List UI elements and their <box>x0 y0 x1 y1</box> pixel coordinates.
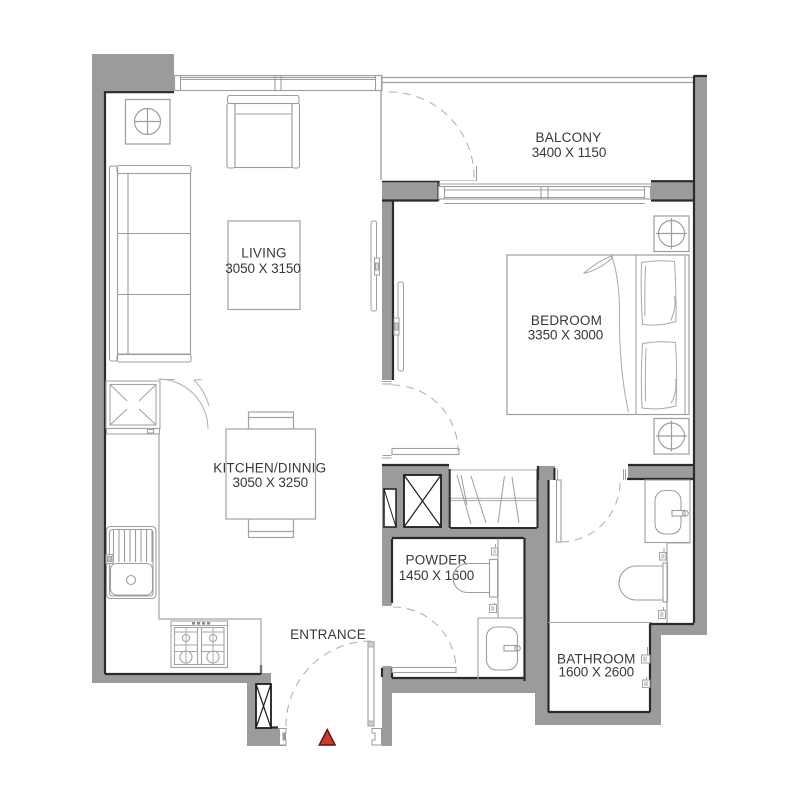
svg-text:3050 X 3250: 3050 X 3250 <box>233 475 308 490</box>
svg-text:ENTRANCE: ENTRANCE <box>290 627 366 642</box>
svg-text:3350 X 3000: 3350 X 3000 <box>528 328 603 343</box>
svg-text:KITCHEN/DINNIG: KITCHEN/DINNIG <box>213 460 326 475</box>
svg-text:BALCONY: BALCONY <box>536 130 602 145</box>
svg-text:3050 X 3150: 3050 X 3150 <box>225 261 300 276</box>
svg-text:BEDROOM: BEDROOM <box>531 313 602 328</box>
svg-text:1600 X 2600: 1600 X 2600 <box>559 665 634 680</box>
svg-text:POWDER: POWDER <box>406 552 468 567</box>
svg-text:LIVING: LIVING <box>241 246 286 261</box>
svg-text:3400 X 1150: 3400 X 1150 <box>532 145 606 160</box>
svg-text:1450 X 1600: 1450 X 1600 <box>399 568 474 583</box>
